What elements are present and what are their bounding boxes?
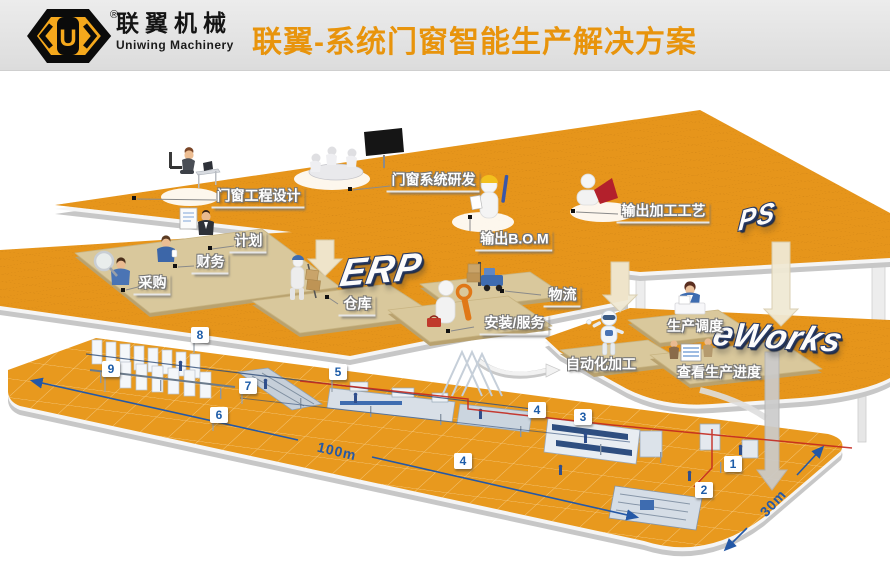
- station-label-automation: 自动化加工: [566, 354, 636, 374]
- station-label-progress: 查看生产进度: [677, 362, 761, 382]
- station-label-scheduling: 生产调度: [667, 316, 723, 336]
- factory-marker-2: 2: [695, 482, 713, 498]
- factory-marker-9: 9: [102, 361, 120, 377]
- station-label-rnd: 门窗系统研发: [387, 170, 480, 193]
- factory-marker-6: 6: [210, 407, 228, 423]
- station-label-procurement: 采购: [134, 273, 171, 296]
- station-label-bom: 输出B.O.M: [475, 229, 552, 252]
- factory-marker-7: 7: [239, 378, 257, 394]
- figure-scheduler: [675, 281, 705, 314]
- station-label-service: 安装/服务: [480, 313, 549, 336]
- factory-marker-8: 8: [191, 327, 209, 343]
- factory-marker-4b: 4: [454, 453, 472, 469]
- factory-marker-4a: 4: [528, 402, 546, 418]
- station-label-finance: 财务: [192, 252, 229, 275]
- factory-marker-5: 5: [329, 364, 347, 380]
- erp-logo: ERP: [337, 246, 426, 297]
- station-label-logistics: 物流: [544, 285, 581, 308]
- factory-marker-3: 3: [574, 409, 592, 425]
- station-label-plan: 计划: [230, 231, 267, 254]
- figure-planner: [180, 208, 214, 235]
- infographic-poster: U ® 联翼机械 Uniwing Machinery 联翼-系统门窗智能生产解决…: [0, 0, 890, 567]
- station-label-warehouse: 仓库: [339, 294, 376, 317]
- station-label-design: 门窗工程设计: [212, 186, 305, 209]
- station-label-process: 输出加工工艺: [617, 201, 710, 224]
- factory-marker-1: 1: [724, 456, 742, 472]
- eworks-logo: eWorks: [708, 315, 849, 360]
